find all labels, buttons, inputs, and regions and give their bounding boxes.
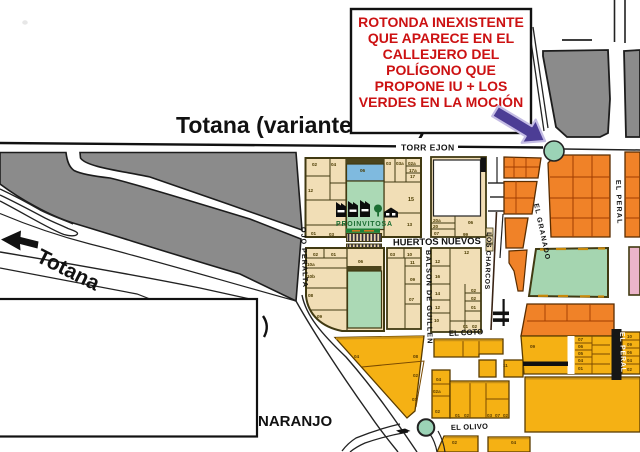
svg-text:13: 13 [407, 222, 413, 227]
svg-text:HUERTOS NUEVOS: HUERTOS NUEVOS [393, 235, 481, 248]
svg-text:07: 07 [495, 413, 501, 418]
svg-text:07: 07 [578, 337, 584, 342]
svg-text:06: 06 [360, 168, 366, 173]
svg-text:20a: 20a [433, 218, 441, 223]
svg-text:02: 02 [464, 413, 470, 418]
svg-text:02: 02 [435, 409, 441, 414]
svg-text:12: 12 [464, 250, 470, 255]
svg-text:15: 15 [408, 197, 414, 203]
svg-text:CALLEJERO DEL: CALLEJERO DEL [383, 46, 500, 62]
svg-text:02: 02 [471, 288, 477, 293]
svg-text:02: 02 [452, 440, 458, 445]
svg-text:17a: 17a [409, 168, 417, 173]
svg-text:09: 09 [530, 344, 536, 349]
svg-text:03a: 03a [396, 161, 404, 166]
svg-text:01: 01 [455, 413, 461, 418]
svg-text:10: 10 [407, 252, 413, 257]
svg-text:05: 05 [578, 351, 584, 356]
svg-text:EL OLIVO: EL OLIVO [451, 422, 489, 432]
svg-text:PROINVITOSA: PROINVITOSA [336, 221, 392, 228]
svg-text:01: 01 [412, 397, 418, 402]
svg-text:POLÍGONO QUE: POLÍGONO QUE [386, 62, 496, 78]
svg-text:NARANJO: NARANJO [258, 413, 333, 430]
svg-text:02a: 02a [408, 161, 416, 166]
svg-text:08: 08 [308, 293, 314, 298]
svg-text:06: 06 [627, 350, 632, 355]
svg-text:04: 04 [354, 354, 360, 359]
svg-text:09: 09 [410, 277, 416, 282]
svg-text:12: 12 [308, 188, 314, 193]
svg-text:12: 12 [435, 305, 441, 310]
svg-text:20: 20 [433, 224, 439, 229]
svg-text:06: 06 [468, 220, 474, 225]
svg-text:12: 12 [435, 259, 441, 264]
svg-text:06: 06 [578, 344, 584, 349]
svg-text:04: 04 [627, 358, 632, 363]
svg-text:QUE APARECE EN EL: QUE APARECE EN EL [368, 30, 515, 46]
svg-text:11: 11 [503, 363, 508, 368]
svg-text:01: 01 [331, 252, 337, 257]
svg-text:02: 02 [471, 296, 477, 301]
svg-text:03: 03 [386, 161, 392, 166]
svg-text:04: 04 [511, 440, 517, 445]
svg-text:04: 04 [436, 377, 442, 382]
svg-text:PROPONE IU + LOS: PROPONE IU + LOS [375, 78, 508, 94]
svg-text:03: 03 [487, 413, 493, 418]
svg-text:04: 04 [578, 358, 584, 363]
svg-text:02a: 02a [433, 389, 441, 394]
svg-text:ROTONDA INEXISTENTE: ROTONDA INEXISTENTE [358, 14, 524, 30]
svg-text:BALSON DE GUILLEN: BALSON DE GUILLEN [424, 250, 435, 345]
svg-text:01: 01 [471, 305, 477, 310]
svg-text:09: 09 [317, 314, 323, 319]
svg-text:04: 04 [331, 162, 337, 167]
svg-text:14: 14 [435, 291, 441, 296]
svg-text:02: 02 [627, 367, 632, 372]
svg-text:EL COTO: EL COTO [449, 327, 484, 338]
svg-text:09: 09 [627, 342, 632, 347]
svg-text:02: 02 [413, 373, 419, 378]
svg-text:07: 07 [409, 297, 415, 302]
svg-text:11: 11 [410, 260, 415, 265]
svg-text:TORR EJON: TORR EJON [401, 143, 455, 153]
svg-text:03: 03 [329, 232, 335, 237]
svg-text:16: 16 [435, 274, 441, 279]
svg-text:02: 02 [313, 252, 319, 257]
svg-text:17: 17 [410, 174, 416, 179]
svg-text:01: 01 [311, 231, 317, 236]
svg-text:03: 03 [390, 252, 396, 257]
svg-text:02: 02 [312, 162, 318, 167]
svg-text:01: 01 [578, 366, 584, 371]
svg-text:EL PERAL: EL PERAL [618, 332, 626, 373]
svg-text:06: 06 [358, 259, 364, 264]
svg-text:10: 10 [627, 334, 632, 339]
svg-text:08: 08 [413, 354, 419, 359]
svg-text:02: 02 [503, 413, 509, 418]
